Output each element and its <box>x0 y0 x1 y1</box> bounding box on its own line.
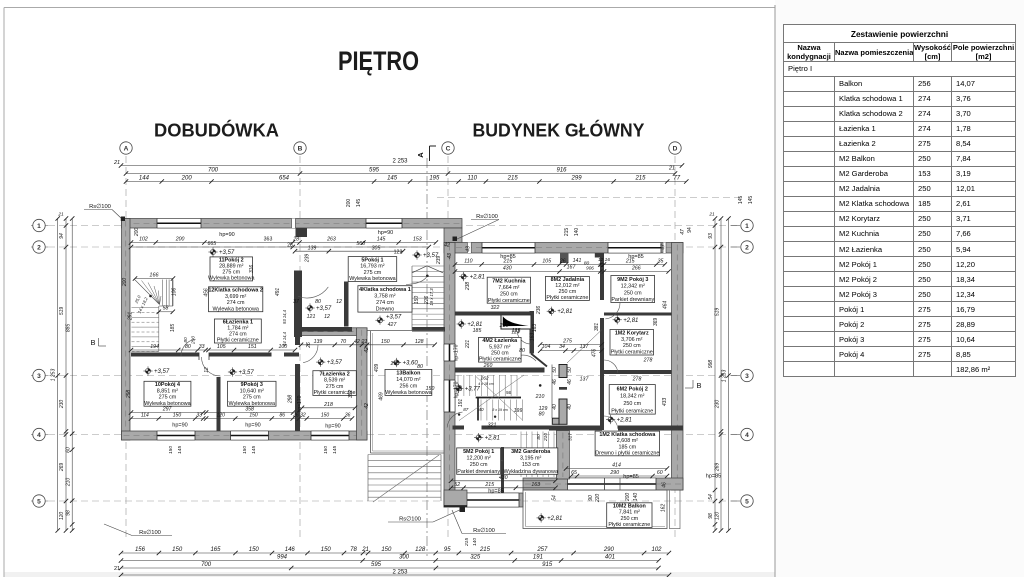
svg-text:199: 199 <box>514 408 523 414</box>
svg-text:464: 464 <box>663 301 669 310</box>
svg-text:560: 560 <box>356 241 365 247</box>
svg-text:200: 200 <box>181 176 193 182</box>
svg-text:163: 163 <box>531 482 540 488</box>
svg-text:80: 80 <box>185 344 191 350</box>
svg-text:150: 150 <box>168 446 174 454</box>
svg-text:150: 150 <box>321 547 332 553</box>
svg-text:36: 36 <box>345 413 351 419</box>
svg-text:269: 269 <box>59 463 65 473</box>
svg-text:100: 100 <box>279 344 288 350</box>
svg-text:1 253: 1 253 <box>51 369 57 382</box>
svg-text:80: 80 <box>458 385 464 391</box>
svg-text:250 cm: 250 cm <box>470 462 488 468</box>
svg-text:21: 21 <box>113 160 120 166</box>
svg-text:hp=90: hp=90 <box>245 423 260 429</box>
svg-text:215: 215 <box>464 538 470 547</box>
svg-text:140: 140 <box>472 538 478 546</box>
svg-text:33: 33 <box>199 344 205 350</box>
svg-text:Wylewka betonowa: Wylewka betonowa <box>208 276 254 282</box>
svg-text:238: 238 <box>465 282 471 292</box>
svg-text:215: 215 <box>507 176 519 182</box>
svg-text:18,342 m²: 18,342 m² <box>620 394 644 400</box>
svg-text:26: 26 <box>559 259 566 265</box>
svg-text:16,793 m²: 16,793 m² <box>360 264 384 270</box>
svg-text:+3,57: +3,57 <box>239 370 255 376</box>
svg-text:275 cm: 275 cm <box>243 395 261 401</box>
svg-text:322: 322 <box>491 305 500 311</box>
svg-text:21: 21 <box>361 547 369 553</box>
svg-text:200: 200 <box>625 493 631 503</box>
svg-text:56: 56 <box>506 390 512 395</box>
svg-text:297: 297 <box>162 407 173 413</box>
svg-text:150: 150 <box>381 339 390 345</box>
svg-text:230: 230 <box>59 400 65 410</box>
svg-text:369: 369 <box>653 318 659 327</box>
svg-text:28: 28 <box>292 237 299 243</box>
svg-text:195: 195 <box>429 176 440 182</box>
svg-text:104: 104 <box>542 344 551 350</box>
svg-text:163: 163 <box>530 333 536 342</box>
svg-text:7,841 m²: 7,841 m² <box>619 510 640 516</box>
svg-text:4M2 Łazienka: 4M2 Łazienka <box>482 338 518 344</box>
svg-text:34: 34 <box>559 344 565 350</box>
svg-text:2 253: 2 253 <box>392 159 408 165</box>
svg-text:257: 257 <box>536 547 548 553</box>
svg-text:150: 150 <box>323 446 329 454</box>
svg-text:275: 275 <box>562 338 572 344</box>
svg-text:275 cm: 275 cm <box>326 384 344 390</box>
svg-text:35: 35 <box>658 259 664 265</box>
svg-text:363: 363 <box>264 236 273 242</box>
svg-text:hp=85: hp=85 <box>623 474 638 480</box>
svg-text:226: 226 <box>424 296 430 306</box>
svg-text:86: 86 <box>279 413 285 419</box>
svg-text:42: 42 <box>364 403 370 409</box>
svg-text:476: 476 <box>592 349 598 358</box>
svg-text:26: 26 <box>306 342 312 349</box>
svg-text:Parkiet drewniany: Parkiet drewniany <box>457 469 500 475</box>
svg-text:200: 200 <box>191 336 197 345</box>
svg-text:145: 145 <box>748 196 754 205</box>
svg-text:250 cm: 250 cm <box>623 401 641 407</box>
svg-text:65: 65 <box>571 470 577 476</box>
svg-text:Wykładzina dywanowa: Wykładzina dywanowa <box>503 469 557 475</box>
svg-text:145: 145 <box>377 237 386 243</box>
svg-text:6M2 Pokój 2: 6M2 Pokój 2 <box>617 386 648 392</box>
svg-text:hp=90: hp=90 <box>378 230 393 236</box>
svg-text:298: 298 <box>126 390 132 400</box>
svg-text:50: 50 <box>552 367 558 373</box>
svg-text:21: 21 <box>708 212 715 218</box>
svg-text:433: 433 <box>662 398 668 407</box>
svg-text:230: 230 <box>714 400 720 410</box>
svg-text:994: 994 <box>277 555 288 561</box>
svg-text:275 cm: 275 cm <box>159 395 177 401</box>
svg-text:162: 162 <box>661 504 667 513</box>
svg-text:+3,77: +3,77 <box>465 386 481 392</box>
svg-text:106: 106 <box>172 288 178 297</box>
svg-text:Płytki ceramiczne: Płytki ceramiczne <box>611 350 653 356</box>
svg-text:C: C <box>446 145 451 152</box>
svg-text:Płytki ceramiczne: Płytki ceramiczne <box>611 408 653 414</box>
svg-text:10Pokój 4: 10Pokój 4 <box>155 382 180 388</box>
svg-text:275 cm: 275 cm <box>364 270 382 276</box>
svg-text:+2,81: +2,81 <box>470 275 485 281</box>
svg-text:298: 298 <box>288 395 294 405</box>
svg-text:BUDYNEK GŁÓWNY: BUDYNEK GŁÓWNY <box>473 120 646 141</box>
svg-text:+3,57: +3,57 <box>154 369 170 375</box>
svg-text:40: 40 <box>567 404 573 410</box>
svg-text:32: 32 <box>300 413 306 419</box>
svg-text:165: 165 <box>210 547 221 553</box>
svg-text:1 253: 1 253 <box>722 370 728 383</box>
svg-text:12: 12 <box>204 367 210 373</box>
svg-text:128: 128 <box>415 339 424 345</box>
svg-text:Płytki ceramiczne: Płytki ceramiczne <box>546 295 588 301</box>
svg-text:121: 121 <box>307 314 316 320</box>
svg-text:hp=90: hp=90 <box>172 423 187 429</box>
svg-text:150: 150 <box>173 413 182 419</box>
svg-text:98: 98 <box>66 510 72 516</box>
svg-text:150: 150 <box>249 547 260 553</box>
svg-text:3,758 m²: 3,758 m² <box>374 293 395 299</box>
svg-text:70: 70 <box>340 339 346 345</box>
svg-text:469: 469 <box>379 392 385 401</box>
svg-text:105: 105 <box>217 344 226 350</box>
svg-text:163: 163 <box>532 324 538 333</box>
svg-text:43: 43 <box>466 246 472 252</box>
svg-text:260: 260 <box>483 363 493 369</box>
svg-text:43: 43 <box>447 253 453 259</box>
svg-text:12: 12 <box>336 299 342 305</box>
svg-text:10,640 m²: 10,640 m² <box>240 388 264 394</box>
svg-text:210: 210 <box>66 478 72 488</box>
svg-text:78: 78 <box>350 547 357 553</box>
svg-text:305: 305 <box>372 245 381 251</box>
svg-text:150: 150 <box>242 446 248 454</box>
svg-text:77: 77 <box>673 176 680 182</box>
svg-text:hp=85: hp=85 <box>488 489 503 495</box>
svg-text:151: 151 <box>248 344 257 350</box>
svg-text:250 cm: 250 cm <box>624 290 642 296</box>
svg-text:144: 144 <box>139 176 150 182</box>
svg-text:110: 110 <box>467 176 477 182</box>
svg-text:654: 654 <box>279 176 290 182</box>
svg-text:325: 325 <box>470 555 481 561</box>
svg-text:278: 278 <box>632 377 642 383</box>
svg-text:236: 236 <box>536 306 542 316</box>
svg-text:110: 110 <box>464 259 472 265</box>
svg-text:185: 185 <box>170 324 176 333</box>
svg-text:8,851 m²: 8,851 m² <box>157 388 178 394</box>
svg-text:Wylewka betonowa: Wylewka betonowa <box>349 276 395 282</box>
svg-text:300: 300 <box>399 555 410 561</box>
svg-text:137: 137 <box>580 344 590 350</box>
svg-text:278: 278 <box>643 358 653 364</box>
svg-text:250 cm: 250 cm <box>500 291 518 297</box>
svg-text:2 253: 2 253 <box>392 570 408 576</box>
svg-text:A: A <box>416 152 425 158</box>
svg-text:3: 3 <box>37 373 41 380</box>
svg-text:80: 80 <box>183 337 189 343</box>
svg-text:215: 215 <box>634 176 646 182</box>
svg-text:46: 46 <box>662 482 668 488</box>
svg-text:7,664 m²: 7,664 m² <box>498 285 519 291</box>
svg-text:94: 94 <box>687 227 693 233</box>
svg-text:Wylewka betonowa: Wylewka betonowa <box>385 390 431 396</box>
svg-text:Płytki ceramiczne: Płytki ceramiczne <box>608 522 650 528</box>
svg-text:145: 145 <box>251 446 257 454</box>
svg-text:239: 239 <box>436 256 442 266</box>
svg-text:42: 42 <box>354 339 360 345</box>
svg-text:150: 150 <box>426 386 435 392</box>
svg-text:137: 137 <box>580 377 590 383</box>
svg-text:145: 145 <box>177 446 183 454</box>
svg-text:80: 80 <box>315 299 321 305</box>
svg-text:+3,60: +3,60 <box>403 361 419 367</box>
svg-text:128: 128 <box>415 547 426 553</box>
svg-text:316: 316 <box>249 265 255 274</box>
svg-text:166: 166 <box>149 273 159 279</box>
svg-text:Rs∅100: Rs∅100 <box>476 213 498 220</box>
svg-text:21: 21 <box>361 339 368 345</box>
svg-text:PIĘTRO: PIĘTRO <box>338 46 419 76</box>
svg-text:299: 299 <box>571 176 583 182</box>
svg-text:156: 156 <box>135 547 146 553</box>
svg-text:185 cm: 185 cm <box>619 444 637 450</box>
svg-text:401: 401 <box>605 555 615 561</box>
svg-text:80: 80 <box>539 412 545 418</box>
svg-text:519: 519 <box>59 307 65 316</box>
svg-text:120: 120 <box>714 512 720 521</box>
svg-text:60: 60 <box>66 447 72 453</box>
svg-text:58: 58 <box>163 305 169 311</box>
svg-text:90: 90 <box>588 495 594 501</box>
svg-text:3: 3 <box>745 373 749 380</box>
svg-text:430: 430 <box>499 475 508 481</box>
svg-text:42: 42 <box>444 243 450 249</box>
svg-text:+3,57: +3,57 <box>316 306 332 312</box>
svg-text:+2,81: +2,81 <box>485 436 500 442</box>
svg-text:26: 26 <box>292 413 299 419</box>
svg-text:167: 167 <box>567 265 577 271</box>
svg-text:5: 5 <box>37 498 41 505</box>
svg-text:700: 700 <box>201 562 212 568</box>
svg-text:239: 239 <box>305 254 311 264</box>
svg-text:87: 87 <box>463 407 469 412</box>
svg-text:+3,57: +3,57 <box>219 250 235 256</box>
svg-text:50: 50 <box>567 367 573 373</box>
svg-text:47: 47 <box>680 229 686 235</box>
svg-text:250: 250 <box>390 361 400 367</box>
svg-text:381: 381 <box>594 323 600 332</box>
svg-text:262: 262 <box>480 376 489 382</box>
svg-text:+2,81: +2,81 <box>617 418 632 424</box>
svg-text:105: 105 <box>542 259 551 265</box>
svg-text:140: 140 <box>574 228 580 237</box>
svg-text:250 cm: 250 cm <box>491 351 509 357</box>
svg-text:12,200 m²: 12,200 m² <box>467 456 491 462</box>
svg-text:916: 916 <box>556 168 567 174</box>
svg-text:210: 210 <box>543 433 549 442</box>
svg-text:291: 291 <box>128 312 134 322</box>
svg-text:12Klatka schodowa 2: 12Klatka schodowa 2 <box>208 288 263 294</box>
svg-text:266: 266 <box>631 266 641 272</box>
svg-text:194: 194 <box>150 344 159 350</box>
svg-text:54: 54 <box>552 495 558 501</box>
svg-text:Rs∅100: Rs∅100 <box>473 527 495 534</box>
svg-text:595: 595 <box>369 168 380 174</box>
svg-text:215: 215 <box>479 547 491 553</box>
svg-text:256 cm: 256 cm <box>400 383 418 389</box>
svg-text:Rs∅100: Rs∅100 <box>89 203 111 210</box>
svg-text:+3,57: +3,57 <box>327 360 343 366</box>
svg-text:40: 40 <box>552 404 558 410</box>
svg-text:274 cm: 274 cm <box>227 300 245 306</box>
svg-text:12,342 m²: 12,342 m² <box>621 284 645 290</box>
svg-text:52: 52 <box>454 482 460 488</box>
svg-text:46: 46 <box>567 379 573 385</box>
svg-text:2: 2 <box>745 244 749 251</box>
svg-text:21: 21 <box>57 212 64 218</box>
svg-text:60: 60 <box>657 470 663 476</box>
svg-text:221: 221 <box>465 340 471 350</box>
svg-text:4: 4 <box>37 432 41 439</box>
svg-text:210: 210 <box>499 323 509 329</box>
svg-text:150: 150 <box>321 413 330 419</box>
svg-text:150: 150 <box>414 296 420 305</box>
svg-text:1M2 Klatka schodowa: 1M2 Klatka schodowa <box>599 432 656 438</box>
svg-text:215: 215 <box>484 482 494 488</box>
svg-text:93: 93 <box>708 233 714 239</box>
svg-text:12 16: 12 16 <box>598 257 610 263</box>
svg-text:595: 595 <box>371 562 382 568</box>
svg-text:+2,81: +2,81 <box>557 309 572 315</box>
svg-text:120: 120 <box>59 512 65 521</box>
svg-text:3,195 m²: 3,195 m² <box>520 456 541 462</box>
svg-text:hp=90: hp=90 <box>219 232 234 238</box>
svg-text:80: 80 <box>519 348 525 354</box>
svg-text:122: 122 <box>394 250 403 256</box>
svg-text:269: 269 <box>714 463 720 473</box>
svg-text:290: 290 <box>609 470 619 476</box>
svg-text:33: 33 <box>196 413 202 419</box>
svg-text:10M2 Balkon: 10M2 Balkon <box>613 504 646 510</box>
svg-text:191: 191 <box>533 555 543 561</box>
svg-text:409: 409 <box>374 364 380 373</box>
svg-text:290: 290 <box>603 547 615 553</box>
svg-text:47: 47 <box>661 244 667 250</box>
svg-text:140: 140 <box>633 493 639 502</box>
svg-text:200: 200 <box>346 199 352 208</box>
svg-text:42: 42 <box>364 347 370 353</box>
svg-text:1: 1 <box>745 223 749 230</box>
svg-text:80: 80 <box>536 434 542 440</box>
svg-text:153: 153 <box>413 237 422 243</box>
svg-text:12: 12 <box>324 314 330 320</box>
svg-text:80: 80 <box>417 364 423 370</box>
svg-text:Rs∅100: Rs∅100 <box>139 529 161 536</box>
svg-text:Drewno: Drewno <box>376 307 395 313</box>
svg-text:8 x 19 cm: 8 x 19 cm <box>492 408 508 412</box>
svg-text:7M2 Kuchnia: 7M2 Kuchnia <box>492 278 526 284</box>
svg-text:263: 263 <box>326 237 336 243</box>
svg-text:7Łazienka 2: 7Łazienka 2 <box>319 372 349 378</box>
svg-text:150: 150 <box>249 413 258 419</box>
svg-text:2,608 m²: 2,608 m² <box>617 438 638 444</box>
svg-text:200: 200 <box>134 228 140 238</box>
svg-text:D: D <box>673 145 678 152</box>
svg-text:392: 392 <box>348 390 354 399</box>
svg-text:120: 120 <box>217 413 226 419</box>
svg-text:4 x 18 cm: 4 x 18 cm <box>478 382 494 386</box>
svg-text:427: 427 <box>388 322 398 328</box>
svg-text:915: 915 <box>542 562 553 568</box>
svg-text:B: B <box>696 381 701 390</box>
svg-text:191: 191 <box>458 399 464 408</box>
svg-text:2: 2 <box>37 244 41 251</box>
svg-text:4: 4 <box>745 432 749 439</box>
svg-text:215: 215 <box>564 228 570 237</box>
svg-text:A: A <box>124 145 129 152</box>
svg-text:5: 5 <box>745 498 749 505</box>
svg-text:Wylewka betonowa: Wylewka betonowa <box>212 306 258 312</box>
svg-text:145: 145 <box>738 196 744 205</box>
svg-text:150: 150 <box>381 547 392 553</box>
svg-text:885: 885 <box>66 324 72 333</box>
svg-text:Drewno i płytki ceramiczne: Drewno i płytki ceramiczne <box>595 450 659 456</box>
svg-text:519: 519 <box>714 308 720 317</box>
svg-text:153 cm: 153 cm <box>522 462 540 468</box>
svg-text:B: B <box>90 338 95 347</box>
svg-text:9M2 Pokój 3: 9M2 Pokój 3 <box>617 277 648 283</box>
svg-text:21: 21 <box>668 166 675 172</box>
svg-text:5,937 m²: 5,937 m² <box>489 344 510 350</box>
svg-text:21: 21 <box>114 566 120 572</box>
svg-text:317: 317 <box>568 433 574 441</box>
svg-text:DOBUDÓWKA: DOBUDÓWKA <box>154 120 279 141</box>
svg-text:665: 665 <box>208 241 217 247</box>
svg-text:+2,81: +2,81 <box>547 516 562 522</box>
svg-text:5M2 Pokój 1: 5M2 Pokój 1 <box>463 449 494 455</box>
svg-text:414: 414 <box>612 463 621 469</box>
svg-text:139: 139 <box>314 339 323 345</box>
svg-text:B: B <box>298 145 303 152</box>
svg-text:+2,81: +2,81 <box>623 318 638 324</box>
svg-text:4Klatka schodowa 1: 4Klatka schodowa 1 <box>359 287 411 293</box>
svg-text:139: 139 <box>308 245 317 251</box>
svg-text:46: 46 <box>552 379 558 385</box>
svg-text:3,699 m²: 3,699 m² <box>225 294 246 300</box>
svg-text:14,070 m²: 14,070 m² <box>396 377 420 383</box>
svg-text:94: 94 <box>59 233 65 239</box>
svg-text:200: 200 <box>122 278 128 288</box>
svg-text:40: 40 <box>478 407 484 412</box>
svg-text:98: 98 <box>708 513 714 519</box>
svg-text:Płytki ceramiczne: Płytki ceramiczne <box>479 357 521 363</box>
svg-text:146: 146 <box>285 547 296 553</box>
svg-text:150: 150 <box>172 547 183 553</box>
svg-text:Płytki ceramiczne: Płytki ceramiczne <box>217 338 259 344</box>
svg-text:3,706 m²: 3,706 m² <box>621 337 642 343</box>
svg-text:102: 102 <box>651 547 662 553</box>
svg-text:321: 321 <box>488 423 497 429</box>
svg-text:250 cm: 250 cm <box>621 516 639 522</box>
svg-text:72: 72 <box>598 263 604 269</box>
svg-text:145: 145 <box>387 176 398 182</box>
svg-text:274 cm: 274 cm <box>376 300 394 306</box>
svg-text:Parkiet drewniany: Parkiet drewniany <box>611 297 654 303</box>
